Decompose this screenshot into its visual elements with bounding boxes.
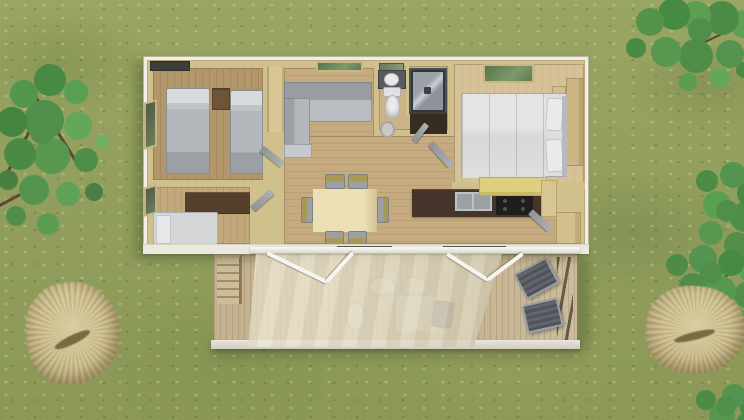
- master-wardrobe: [566, 78, 584, 166]
- tall-cabinet: [267, 66, 284, 132]
- dining-table: [312, 188, 378, 233]
- tree-right-middle: [716, 200, 738, 222]
- corner-sofa-chaise: [284, 98, 310, 158]
- deck-handrail: [240, 255, 242, 304]
- wardrobe: [185, 192, 250, 214]
- deck-stairs: [217, 258, 240, 304]
- deck-railing-balusters: [557, 257, 573, 342]
- wash-basin: [384, 73, 399, 86]
- living-room-window: [316, 61, 363, 72]
- twin-bed-right: [230, 90, 263, 174]
- kitchen-corner-cabinet: [556, 212, 581, 244]
- shower-tray: [413, 72, 443, 110]
- dining-chair: [348, 174, 368, 189]
- toilet-bowl: [385, 95, 400, 119]
- tree-bottom-right-corner: [716, 396, 736, 416]
- awning-mount-bar: [250, 247, 580, 253]
- twin-bedroom-side-window: [144, 99, 157, 149]
- tree-top-right: [688, 18, 712, 42]
- dining-chair: [301, 197, 313, 223]
- dining-chair: [348, 231, 367, 245]
- headboard: [562, 96, 567, 176]
- second-bedroom-bed: [153, 212, 218, 245]
- master-bedroom-skylight: [483, 64, 534, 83]
- dining-chair: [377, 197, 389, 223]
- tree-bottom-right: [700, 262, 722, 284]
- tree-top-left: [30, 120, 54, 144]
- kitchen-tall-cabinet: [541, 180, 557, 217]
- bathroom-cabinet: [410, 112, 447, 134]
- aerial-floorplan-scene: [0, 0, 744, 420]
- twin-bed-left: [166, 88, 210, 174]
- master-bed-duvet: [462, 94, 546, 178]
- cooktop: [496, 195, 533, 215]
- round-basket: [380, 121, 395, 138]
- master-bed: [461, 93, 567, 177]
- twin-bedroom-top-window: [150, 61, 190, 71]
- nightstand: [212, 88, 230, 110]
- dining-chair: [325, 174, 345, 189]
- dining-chair: [325, 231, 344, 245]
- yellow-bar-counter: [479, 177, 547, 196]
